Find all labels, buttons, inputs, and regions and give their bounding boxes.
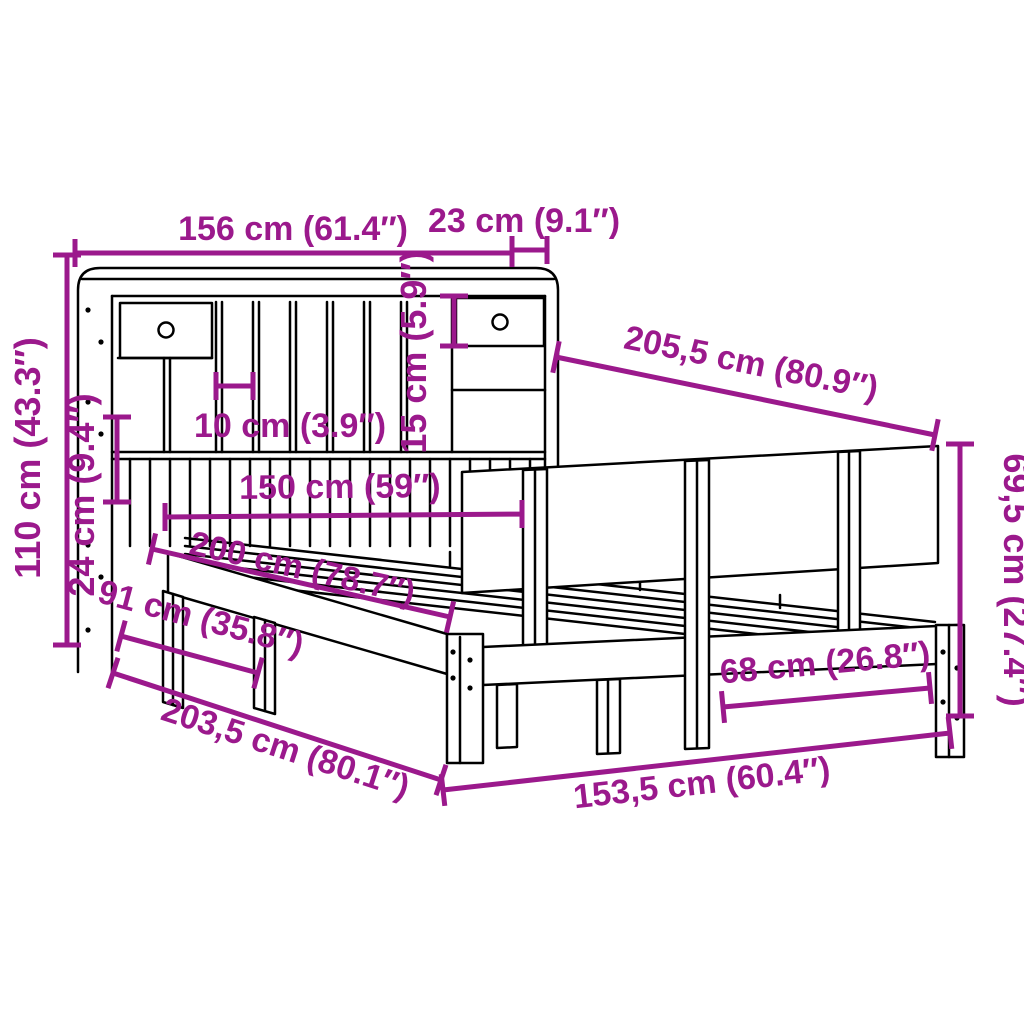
dim-label-frame-length-outer: 203,5 cm (80.1″): [157, 691, 414, 807]
side-panel-post-2: [685, 460, 709, 749]
dim-label-side-panel-height: 69,5 cm (27.4″): [996, 453, 1024, 706]
right-drawer-knob: [493, 315, 508, 330]
dim-label-headboard-height: 110 cm (43.3″): [7, 337, 48, 578]
diagram-canvas: 156 cm (61.4″) 23 cm (9.1″) 205,5 cm (80…: [0, 0, 1024, 1024]
dim-label-mattress-width: 150 cm (59″): [239, 467, 441, 507]
foot-leg-small: [497, 684, 517, 748]
left-drawer-knob: [159, 323, 174, 338]
foot-corner-leg-front: [447, 634, 483, 763]
dimension-diagram: 156 cm (61.4″) 23 cm (9.1″) 205,5 cm (80…: [0, 0, 1024, 1024]
dim-label-compartment-height: 15 cm (5.9″): [393, 250, 434, 453]
side-panel-post-3: [838, 451, 860, 644]
foot-leg-mid: [597, 679, 620, 754]
dim-label-total-length: 205,5 cm (80.9″): [621, 319, 882, 408]
dim-label-slot-width: 10 cm (3.9″): [194, 407, 386, 445]
dim-label-headboard-width: 156 cm (61.4″): [178, 210, 408, 248]
dim-label-headboard-depth: 23 cm (9.1″): [428, 202, 620, 240]
dim-line-headboard-depth: [512, 236, 547, 264]
dim-label-lower-panel-height: 24 cm (9.4″): [61, 393, 102, 596]
